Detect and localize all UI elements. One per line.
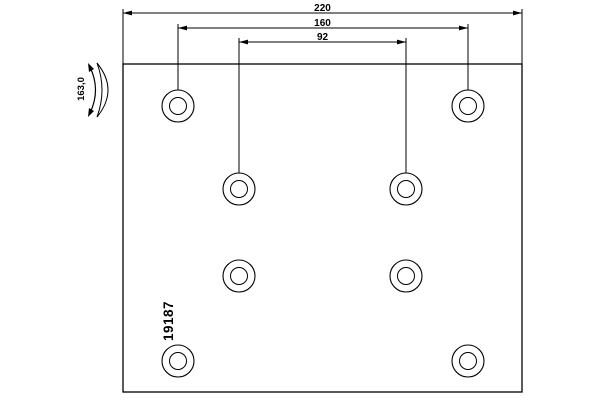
radius-label: 163,0 [76, 77, 87, 101]
arrowhead-right-icon [397, 40, 406, 45]
arrowhead-right-icon [459, 26, 468, 31]
part-number: 19187 [161, 301, 176, 341]
curved-arrow-icon [90, 67, 96, 113]
arrowhead-left-icon [123, 11, 132, 16]
curved-arrow-top-head-icon [88, 63, 94, 72]
curved-arrow-bottom-head-icon [88, 108, 94, 117]
dim-label-outer-spacing: 160 [314, 18, 331, 29]
arrowhead-left-icon [178, 26, 187, 31]
dim-label-inner-spacing: 92 [317, 32, 329, 43]
drawing-svg: 220 160 92 163,0 19187 [0, 0, 600, 400]
technical-drawing-brake-lining: 220 160 92 163,0 19187 [0, 0, 600, 400]
arrowhead-left-icon [239, 40, 248, 45]
curved-band-icon [97, 63, 108, 117]
arrowhead-right-icon [513, 11, 522, 16]
curvature-symbol [88, 63, 108, 117]
dim-label-total-width: 220 [314, 3, 331, 14]
